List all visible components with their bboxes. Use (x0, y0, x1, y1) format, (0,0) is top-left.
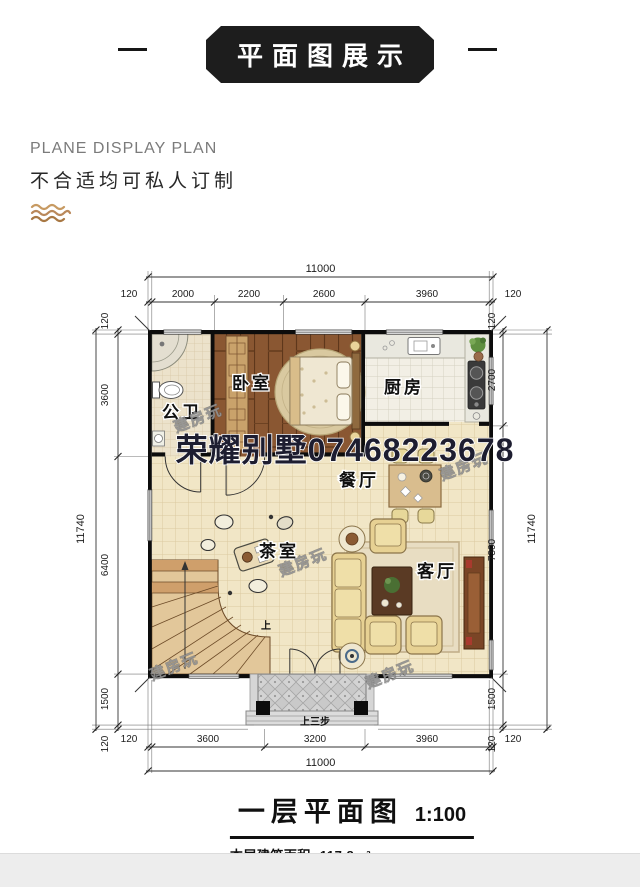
dim-left-seg-2: 6400 (100, 553, 111, 576)
room-label-living-room: 客厅 (416, 561, 457, 581)
dim-bottom-seg-3: 3960 (416, 734, 439, 745)
caption-line: 一层平面图 1:100 (230, 790, 474, 839)
toilet (153, 382, 184, 399)
dim-left-seg-4: 120 (100, 735, 111, 752)
wave-icon (30, 202, 76, 224)
armchair-top (370, 519, 406, 553)
dim-bottom-total: 11000 (306, 757, 336, 769)
dim-top-seg-4: 3960 (416, 289, 439, 300)
dim-top-seg-0: 120 (121, 289, 138, 300)
banner-dash-left (118, 48, 147, 51)
dim-right-seg-3: 1500 (487, 687, 498, 710)
side-table-top (339, 526, 365, 552)
tv-cabinet (464, 557, 484, 649)
dim-right-seg-4: 120 (487, 735, 498, 752)
dim-top-total: 11000 (306, 263, 336, 275)
caption-title: 一层平面图 (238, 790, 403, 829)
banner-title: 平面图展示 (237, 41, 412, 71)
watermark-main: 荣耀别墅07468223678 (176, 432, 515, 468)
armchair-bottom-left (365, 616, 401, 654)
room-label-dining: 餐厅 (339, 470, 379, 490)
coffee-table (372, 567, 412, 615)
dim-bottom-seg-2: 3200 (304, 734, 327, 745)
subtitle-cn: 不合适均可私人订制 (30, 166, 237, 193)
stair-up-label: 上 (261, 619, 271, 632)
dim-top-seg-1: 2000 (172, 289, 195, 300)
dim-right-seg-2: 7300 (487, 538, 498, 561)
dim-bottom-seg-4: 120 (505, 734, 522, 745)
sofa (332, 553, 366, 652)
dim-right-seg-1: 2700 (487, 368, 498, 391)
dim-left-total: 11740 (75, 514, 87, 544)
dim-right-seg-0: 120 (487, 312, 498, 329)
intro-block: PLANE DISPLAY PLAN 不合适均可私人订制 (30, 140, 237, 224)
floor-plan: 11000 120 2000 2200 2600 3960 120 120 36… (58, 255, 578, 785)
dim-bottom-seg-1: 3600 (197, 734, 220, 745)
dim-top-seg-2: 2200 (238, 289, 261, 300)
dim-top-seg-3: 2600 (313, 289, 336, 300)
footer-band (0, 853, 640, 887)
dim-left-seg-1: 3600 (100, 383, 111, 406)
side-table-bottom (339, 643, 365, 669)
bathroom-sink (153, 431, 165, 446)
room-label-bedroom: 卧室 (232, 373, 272, 393)
page: { "header": { "banner_title": "平面图展示" },… (0, 0, 640, 887)
entry-steps-label: 上三步 (300, 715, 330, 728)
dim-right-total: 11740 (526, 514, 538, 544)
header-banner: 平面图展示 (206, 26, 434, 83)
banner-dash-right (468, 48, 497, 51)
dim-bottom-seg-0: 120 (121, 734, 138, 745)
dim-left-seg-3: 1500 (100, 687, 111, 710)
room-label-kitchen: 厨房 (384, 377, 424, 397)
subtitle-en: PLANE DISPLAY PLAN (30, 140, 237, 158)
dim-top-seg-5: 120 (505, 289, 522, 300)
caption-scale: 1:100 (415, 804, 466, 827)
dim-left-seg-0: 120 (100, 312, 111, 329)
armchair-bottom-right (406, 616, 442, 654)
